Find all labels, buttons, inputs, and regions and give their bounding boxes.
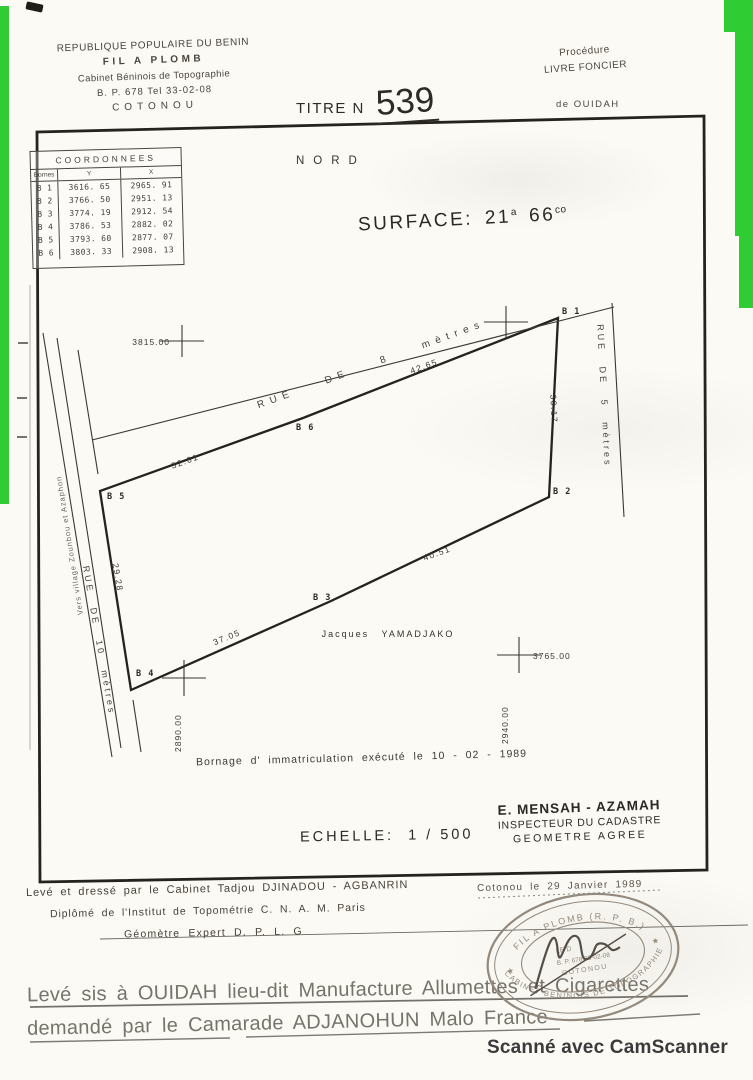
- stamp-star-left: ★: [506, 966, 514, 976]
- camscanner-watermark: Scanné avec CamScanner: [487, 1037, 728, 1059]
- scanner-edge-green-right: [735, 0, 753, 236]
- scanner-edge-green-right-top: [724, 0, 753, 32]
- stamp-star-right: ★: [651, 936, 659, 946]
- stamp-layer: FIL A PLOMB (R. P. B.) CABINET BENINOIS …: [0, 0, 753, 1080]
- stamp-seal: FIL A PLOMB (R. P. B.) CABINET BENINOIS …: [478, 881, 687, 1034]
- scanner-edge-green-right-lower: [739, 236, 753, 308]
- paper-crease: [29, 285, 31, 750]
- scanned-survey-document: B 1 B 2 B 3 B 4 B 5 B 6 42.65 30.17 40.5…: [0, 0, 753, 1080]
- scanner-edge-green-left: [0, 6, 9, 504]
